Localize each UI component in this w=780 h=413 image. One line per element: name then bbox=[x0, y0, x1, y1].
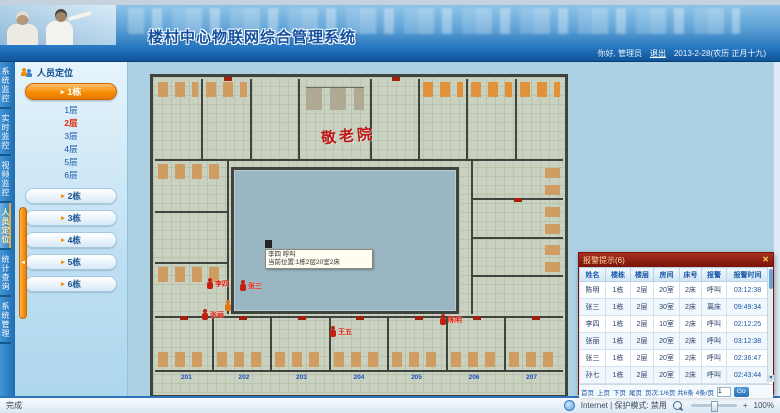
cell-time: 03:12:38 bbox=[727, 282, 769, 299]
cell-building: 1栋 bbox=[606, 299, 631, 316]
room bbox=[420, 79, 468, 159]
zoom-level[interactable]: 100% bbox=[754, 401, 774, 410]
building-button-5[interactable]: ▸ 5栋 bbox=[25, 254, 117, 270]
alarm-pagination: 首页 上页 下页 尾页 页次:1/6页 共6条 4条/页 Go bbox=[579, 384, 773, 398]
person-label: 张丽 bbox=[210, 310, 224, 320]
room bbox=[473, 200, 563, 239]
building-button-6[interactable]: ▸ 6栋 bbox=[25, 276, 117, 292]
sidebar-title: 人员定位 bbox=[37, 66, 73, 79]
arrow-icon: ▸ bbox=[61, 192, 65, 200]
cell-floor: 2层 bbox=[631, 282, 654, 299]
arrow-icon: ▸ bbox=[61, 236, 65, 244]
cell-alarm-type: 呼叫 bbox=[702, 282, 727, 299]
alarm-panel-titlebar: 报警提示(6) ✕ bbox=[579, 253, 773, 267]
cell-bed: 2床 bbox=[680, 350, 702, 367]
person-marker[interactable]: 李四 bbox=[206, 278, 214, 289]
cell-floor: 2层 bbox=[631, 350, 654, 367]
room bbox=[155, 264, 227, 314]
banner-figure bbox=[7, 24, 38, 45]
alarm-row[interactable]: 张三 1栋 2层 20室 2床 呼叫 02:36:47 bbox=[580, 350, 769, 367]
nav-tab-video-monitor[interactable]: 视频监控 bbox=[0, 156, 11, 203]
arrow-icon: ▸ bbox=[61, 214, 65, 222]
room-number: 207 bbox=[526, 374, 537, 381]
alarm-table-header: 姓名 楼栋 楼层 房间 床号 报警 报警时间 bbox=[580, 268, 769, 282]
user-bar: 你好, 管理员 退出 2013-2-28(农历 正月十九) bbox=[0, 45, 780, 62]
room-number: 203 bbox=[296, 374, 307, 381]
person-marker[interactable]: 张丽 bbox=[201, 309, 209, 320]
room-number: 204 bbox=[354, 374, 365, 381]
app-window: 楼村中心物联网综合管理系统 你好, 管理员 退出 2013-2-28(农历 正月… bbox=[0, 0, 780, 413]
floor-item-2[interactable]: 2层 bbox=[15, 117, 127, 130]
building-button-label: 4栋 bbox=[68, 234, 81, 246]
date-display: 2013-2-28(农历 正月十九) bbox=[674, 48, 766, 59]
room bbox=[155, 318, 214, 370]
room-number: 202 bbox=[239, 374, 250, 381]
cell-floor: 2层 bbox=[631, 333, 654, 350]
room bbox=[203, 79, 251, 159]
cell-building: 1栋 bbox=[606, 333, 631, 350]
cell-floor: 2层 bbox=[631, 367, 654, 384]
column-header: 楼层 bbox=[631, 268, 654, 282]
building-button-3[interactable]: ▸ 3栋 bbox=[25, 210, 117, 226]
person-label: 张三 bbox=[248, 281, 262, 291]
building-button-2[interactable]: ▸ 2栋 bbox=[25, 188, 117, 204]
person-label: 王五 bbox=[338, 327, 352, 337]
floor-item-4[interactable]: 4层 bbox=[15, 143, 127, 156]
floor-list: 1层 2层 3层 4层 5层 6层 bbox=[15, 104, 127, 182]
room-number: 205 bbox=[411, 374, 422, 381]
alarm-row[interactable]: 陈明 1栋 2层 20室 2床 呼叫 03:12:38 bbox=[580, 282, 769, 299]
banner-figure bbox=[16, 11, 29, 25]
cell-room: 30室 bbox=[654, 299, 680, 316]
cell-time: 02:12:25 bbox=[727, 316, 769, 333]
column-header: 房间 bbox=[654, 268, 680, 282]
cell-building: 1栋 bbox=[606, 367, 631, 384]
cell-name: 张丽 bbox=[580, 333, 606, 350]
cell-name: 李四 bbox=[580, 316, 606, 333]
pager-last[interactable]: 尾页 bbox=[629, 387, 642, 397]
people-icon bbox=[21, 68, 33, 77]
person-marker[interactable]: 张三 bbox=[239, 280, 247, 291]
cell-time: 02:43:44 bbox=[727, 367, 769, 384]
zoom-slider[interactable] bbox=[691, 404, 737, 407]
logout-link[interactable]: 退出 bbox=[650, 48, 666, 59]
internet-zone-icon bbox=[564, 400, 575, 411]
pager-info: 页次:1/6页 共6条 4条/页 bbox=[645, 387, 714, 397]
zone-text: Internet | 保护模式: 禁用 bbox=[581, 400, 667, 411]
cell-time: 09:49:34 bbox=[727, 299, 769, 316]
room bbox=[473, 277, 563, 314]
room bbox=[331, 318, 390, 370]
banner-figure bbox=[46, 21, 73, 45]
banner-photo bbox=[0, 5, 116, 45]
room bbox=[448, 318, 507, 370]
floorplan-right-rooms bbox=[471, 161, 563, 314]
zoom-slider-thumb[interactable] bbox=[711, 401, 718, 412]
pager-first[interactable]: 首页 bbox=[581, 387, 594, 397]
building-button-label: 1栋 bbox=[67, 85, 81, 98]
cell-building: 1栋 bbox=[606, 350, 631, 367]
room-number: 206 bbox=[469, 374, 480, 381]
app-banner: 楼村中心物联网综合管理系统 bbox=[0, 5, 780, 45]
sidebar-collapse-handle[interactable]: ◄ bbox=[19, 207, 27, 319]
cell-name: 陈明 bbox=[580, 282, 606, 299]
cell-bed: 2床 bbox=[680, 282, 702, 299]
floorplan-left-rooms bbox=[155, 161, 229, 314]
tooltip-line1: 李四 呼叫 bbox=[268, 251, 370, 259]
cell-building: 1栋 bbox=[606, 316, 631, 333]
app-title: 楼村中心物联网综合管理系统 bbox=[148, 26, 356, 45]
alarm-row[interactable]: 张三 1栋 2层 30室 2床 离床 09:49:34 bbox=[580, 299, 769, 316]
banner-figure bbox=[68, 11, 92, 21]
room bbox=[155, 79, 203, 159]
cell-time: 02:36:47 bbox=[727, 350, 769, 367]
cell-alarm-type: 呼叫 bbox=[702, 316, 727, 333]
room-corridor bbox=[252, 79, 300, 159]
page-scrollbar-gutter[interactable] bbox=[773, 62, 780, 396]
sidebar-panel: 人员定位 ▸ 1栋 1层 2层 3层 4层 5层 6层 ▸ 2栋 ▸ 3栋 ▸ … bbox=[15, 62, 128, 396]
status-text: 完成 bbox=[6, 400, 558, 411]
cell-name: 张三 bbox=[580, 299, 606, 316]
left-nav-strip: 系统监控 实时监控 视频监控 人员定位 统计查询 系统管理 bbox=[0, 62, 15, 396]
floorplan-top-rooms bbox=[155, 79, 563, 161]
nav-tab-system-manage[interactable]: 系统管理 bbox=[0, 297, 11, 344]
cell-floor: 2层 bbox=[631, 299, 654, 316]
nav-tab-system-monitor[interactable]: 系统监控 bbox=[0, 62, 11, 109]
column-header: 报警 bbox=[702, 268, 727, 282]
column-header: 楼栋 bbox=[606, 268, 631, 282]
alarm-panel-title: 报警提示(6) bbox=[583, 255, 762, 266]
scroll-down-icon[interactable]: ▼ bbox=[768, 375, 774, 382]
nav-tab-realtime-monitor[interactable]: 实时监控 bbox=[0, 109, 11, 156]
room bbox=[155, 213, 227, 265]
floor-item-6[interactable]: 6层 bbox=[15, 169, 127, 182]
magnifier-icon bbox=[673, 401, 682, 410]
room bbox=[506, 318, 563, 370]
pager-goto-input[interactable] bbox=[717, 387, 731, 397]
room bbox=[389, 318, 448, 370]
status-bar: 完成 Internet | 保护模式: 禁用 + 100% bbox=[0, 396, 780, 413]
pager-prev[interactable]: 上页 bbox=[597, 387, 610, 397]
person-marker[interactable]: 陈明 bbox=[439, 314, 447, 325]
cell-bed: 2床 bbox=[680, 316, 702, 333]
building-button-label: 2栋 bbox=[68, 190, 81, 202]
column-header: 报警时间 bbox=[727, 268, 769, 282]
person-marker[interactable]: 王五 bbox=[329, 326, 337, 337]
column-header: 床号 bbox=[680, 268, 702, 282]
cell-room: 20室 bbox=[654, 333, 680, 350]
floorplan[interactable]: 敬老院 201 202 203 204 205 206 207 李四 张三 张丽 bbox=[150, 74, 568, 398]
room bbox=[473, 239, 563, 278]
cell-room: 10室 bbox=[654, 316, 680, 333]
nav-tab-statistics[interactable]: 统计查询 bbox=[0, 250, 11, 297]
alarm-row[interactable]: 张丽 1栋 2层 20室 2床 呼叫 03:12:38 bbox=[580, 333, 769, 350]
building-button-label: 6栋 bbox=[68, 278, 81, 290]
cell-time: 03:12:38 bbox=[727, 333, 769, 350]
room-number: 201 bbox=[181, 374, 192, 381]
cell-name: 孙七 bbox=[580, 367, 606, 384]
close-icon[interactable]: ✕ bbox=[762, 255, 769, 265]
floor-item-5[interactable]: 5层 bbox=[15, 156, 127, 169]
room bbox=[214, 318, 273, 370]
room bbox=[517, 79, 563, 159]
room-number-labels: 201 202 203 204 205 206 207 bbox=[163, 374, 555, 381]
cell-alarm-type: 离床 bbox=[702, 299, 727, 316]
cell-room: 20室 bbox=[654, 282, 680, 299]
cell-bed: 2床 bbox=[680, 367, 702, 384]
user-greeting: 你好, 管理员 bbox=[598, 48, 642, 59]
building-button-label: 3栋 bbox=[68, 212, 81, 224]
pager-go-button[interactable]: Go bbox=[734, 387, 749, 397]
cell-name: 张三 bbox=[580, 350, 606, 367]
banner-figure bbox=[55, 9, 67, 22]
arrow-icon: ▸ bbox=[61, 280, 65, 288]
person-label: 陈明 bbox=[448, 315, 462, 325]
cell-bed: 2床 bbox=[680, 299, 702, 316]
person-marker[interactable] bbox=[224, 300, 232, 311]
cell-room: 20室 bbox=[654, 350, 680, 367]
building-button-4[interactable]: ▸ 4栋 bbox=[25, 232, 117, 248]
person-label: 李四 bbox=[215, 279, 229, 289]
pager-next[interactable]: 下页 bbox=[613, 387, 626, 397]
scrollbar-thumb[interactable] bbox=[769, 269, 773, 289]
alarm-row[interactable]: 李四 1栋 2层 10室 2床 呼叫 02:12:25 bbox=[580, 316, 769, 333]
room bbox=[473, 161, 563, 200]
column-header: 姓名 bbox=[580, 268, 606, 282]
cell-bed: 2床 bbox=[680, 333, 702, 350]
alarm-table: 姓名 楼栋 楼层 房间 床号 报警 报警时间 陈明 1栋 2层 20室 2床 呼… bbox=[579, 267, 769, 384]
person-tooltip: 李四 呼叫 当前位置:1栋2层20室2床 bbox=[265, 249, 373, 269]
alarm-scrollbar[interactable]: ▼ bbox=[767, 267, 773, 382]
alarm-row[interactable]: 孙七 1栋 2层 20室 2床 呼叫 02:43:44 bbox=[580, 367, 769, 384]
tooltip-line2: 当前位置:1栋2层20室2床 bbox=[268, 259, 370, 267]
floor-item-1[interactable]: 1层 bbox=[15, 104, 127, 117]
cell-building: 1栋 bbox=[606, 282, 631, 299]
nav-tab-personnel-location[interactable]: 人员定位 bbox=[0, 203, 11, 250]
arrow-icon: ▸ bbox=[61, 258, 65, 266]
door-open-icon bbox=[265, 240, 272, 248]
building-button-1[interactable]: ▸ 1栋 bbox=[25, 83, 117, 100]
sidebar-title-row: 人员定位 bbox=[15, 62, 127, 81]
cell-alarm-type: 呼叫 bbox=[702, 350, 727, 367]
alarm-panel: 报警提示(6) ✕ 姓名 楼栋 楼层 房间 床号 报警 报警时间 bbox=[578, 252, 774, 395]
arrow-icon: ▸ bbox=[61, 88, 65, 96]
floorplan-bottom-rooms bbox=[155, 316, 563, 372]
building-button-label: 5栋 bbox=[68, 256, 81, 268]
cell-alarm-type: 呼叫 bbox=[702, 367, 727, 384]
zoom-plus[interactable]: + bbox=[743, 401, 748, 410]
room bbox=[155, 161, 227, 213]
cell-room: 20室 bbox=[654, 367, 680, 384]
floor-item-3[interactable]: 3层 bbox=[15, 130, 127, 143]
room bbox=[272, 318, 331, 370]
room bbox=[468, 79, 516, 159]
room bbox=[372, 79, 420, 159]
cell-alarm-type: 呼叫 bbox=[702, 333, 727, 350]
cell-floor: 2层 bbox=[631, 316, 654, 333]
